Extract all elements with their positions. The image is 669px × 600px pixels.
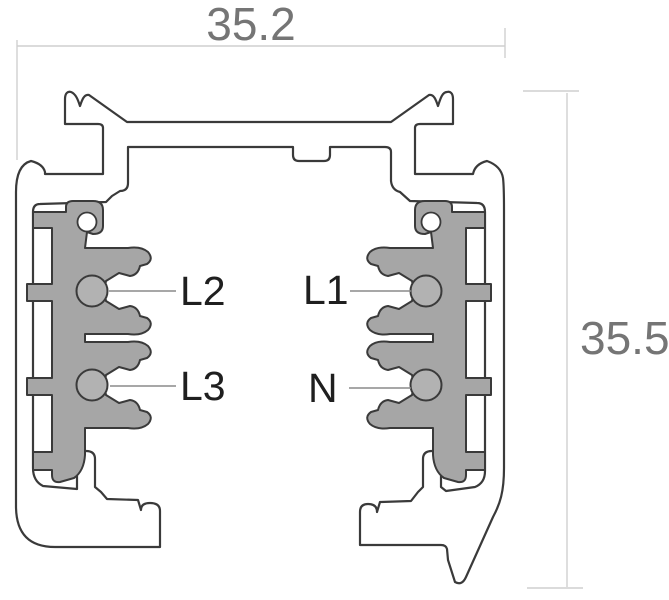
- right-hook-cutout: [422, 213, 441, 232]
- conductor-label-n: N: [308, 365, 338, 411]
- conductors: [77, 276, 442, 401]
- conductor-l2-circle: [77, 276, 108, 307]
- dim-height-label: 35.5: [580, 312, 669, 364]
- dim-width-label: 35.2: [206, 0, 296, 50]
- left-insulator: [27, 201, 151, 482]
- aluminum-profile-outline: [16, 92, 504, 583]
- leader-lines: [109, 291, 411, 388]
- conductor-label-l1: L1: [303, 267, 349, 313]
- left-hook-cutout: [78, 213, 97, 232]
- conductor-n-circle: [411, 370, 442, 401]
- right-insulator: [367, 201, 491, 482]
- conductor-label-l3: L3: [180, 363, 226, 409]
- track-cross-section-diagram: L2 L3 L1 N 35.2 35.5: [0, 0, 669, 600]
- conductor-l3-circle: [77, 370, 108, 401]
- conductor-l1-circle: [411, 276, 442, 307]
- conductor-label-l2: L2: [180, 268, 226, 314]
- profile-drawing: L2 L3 L1 N 35.2 35.5: [0, 0, 669, 600]
